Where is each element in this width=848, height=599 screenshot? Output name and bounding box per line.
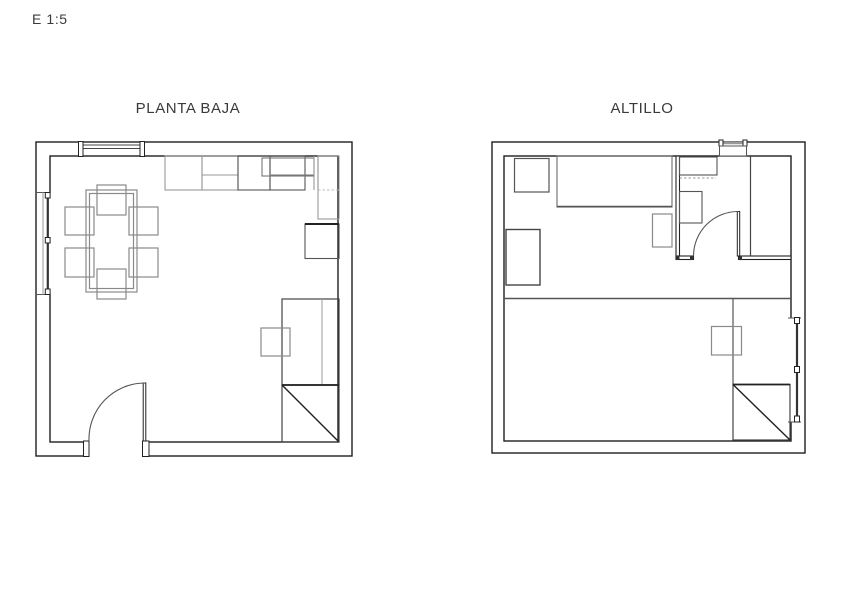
window-top-small — [719, 140, 747, 156]
bathroom-fixtures — [680, 157, 718, 223]
bath-fixture-toilet — [680, 192, 703, 224]
bedroom-chair — [653, 214, 673, 247]
kitchen-fridge — [305, 224, 339, 259]
drawing-canvas: E 1:5 PLANTA BAJA ALTILLO — [0, 0, 848, 599]
staircase — [282, 385, 339, 442]
kitchen-appliance — [238, 156, 270, 190]
bathroom-door — [694, 211, 740, 256]
window-end-cap — [79, 142, 84, 157]
bedroom-furniture — [506, 156, 672, 285]
dining-table-inner — [90, 194, 134, 289]
desk-chair — [712, 327, 742, 356]
door-swing-arc — [89, 383, 145, 441]
bath-fixture-counter — [680, 157, 718, 175]
kitchen-cabinet — [165, 156, 202, 190]
wall-opening-mask — [789, 319, 794, 422]
window-end-cap — [45, 289, 50, 295]
wall-outer-line — [492, 142, 805, 453]
wardrobe — [506, 230, 540, 286]
wall-end-cap — [690, 256, 694, 261]
window-end-cap — [45, 193, 50, 199]
kitchen-cabinet — [318, 156, 339, 219]
floor-plans-drawing — [0, 0, 848, 599]
wall-end-cap — [676, 256, 680, 261]
door-leaf — [737, 212, 739, 257]
window-left — [36, 193, 50, 295]
kitchen-appliance — [270, 156, 305, 190]
bathroom-partition — [676, 156, 791, 260]
window-end-cap — [743, 140, 747, 146]
staircase — [733, 385, 790, 441]
kitchen — [165, 156, 339, 259]
plan-planta-baja — [36, 142, 352, 459]
desk-area — [261, 299, 339, 385]
window-end-cap — [795, 416, 800, 422]
door-leaf — [143, 383, 146, 441]
dining-set — [65, 185, 158, 299]
window-end-cap — [140, 142, 145, 157]
door-jamb — [84, 441, 90, 457]
window-top — [79, 142, 145, 157]
dining-chair — [97, 269, 126, 299]
desk-chair — [261, 328, 290, 356]
staircase-diagonal — [282, 385, 339, 442]
door-swing-arc — [694, 211, 739, 256]
partition-wall-horizontal — [739, 256, 792, 260]
window-end-cap — [719, 140, 723, 146]
bed — [557, 156, 672, 207]
window-end-cap — [45, 238, 50, 244]
window-end-cap — [795, 318, 800, 324]
plan-altillo — [492, 140, 805, 453]
nightstand — [515, 159, 550, 193]
door-jamb — [143, 441, 150, 457]
kitchen-cabinet — [202, 156, 238, 190]
exterior-wall — [492, 142, 805, 453]
desk-area — [712, 299, 742, 385]
wall-opening-mask — [90, 441, 143, 459]
window-reveal-box — [720, 146, 747, 156]
staircase-diagonal — [733, 385, 790, 441]
window-end-cap — [795, 367, 800, 373]
